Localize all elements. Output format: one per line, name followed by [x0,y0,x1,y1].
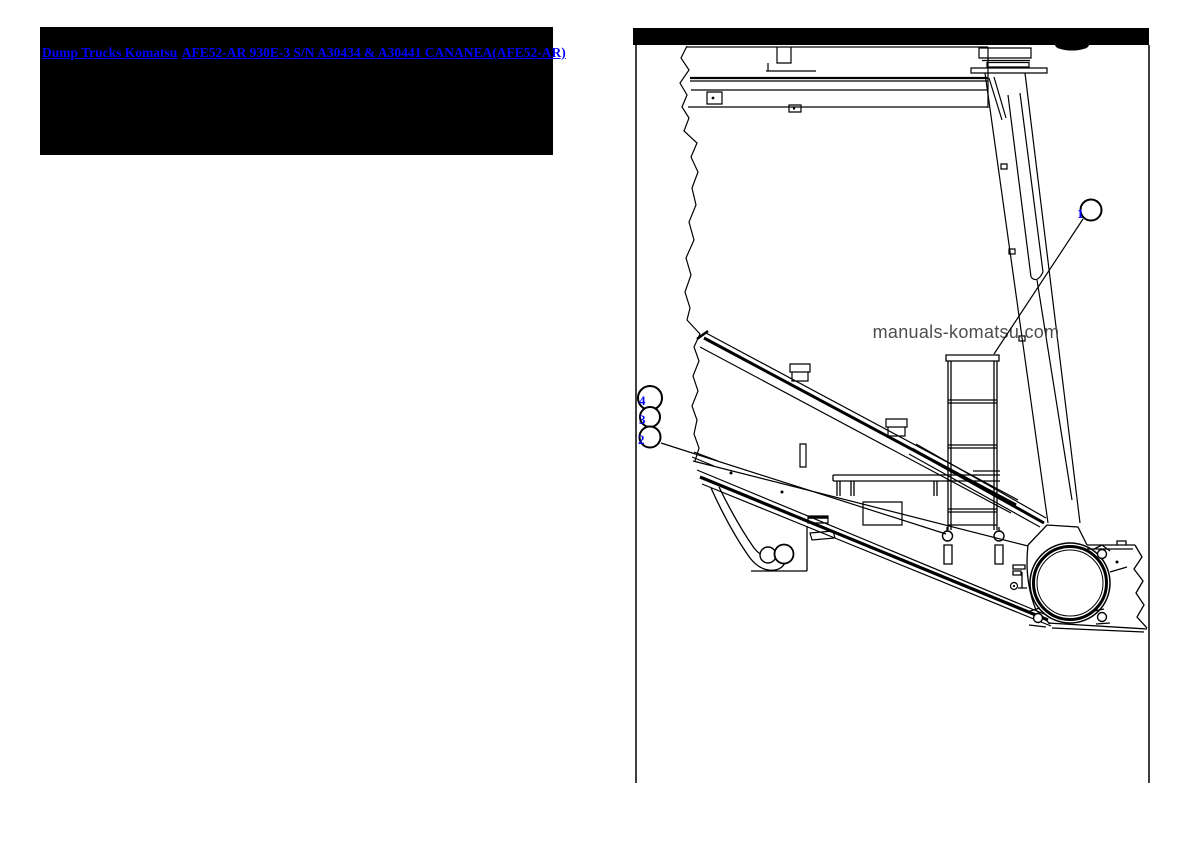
hub-bolt [1034,614,1043,623]
panel-border-lines [636,45,1149,783]
top-bar-blob [1055,40,1089,51]
callout-number-2: 2 [638,432,645,447]
bracket-hole [760,547,776,563]
break-line-left [680,46,700,461]
rear-rail [909,444,1046,527]
truck-frame-top [687,47,988,112]
callout-number-3: 3 [639,412,646,427]
hub-ring [1034,547,1107,620]
hub-bolt [1098,613,1107,622]
hoist-cylinder [985,73,1080,523]
rail-dot [730,472,733,475]
frame-top-lines [687,47,988,112]
cylinder-flange [971,48,1047,73]
callout-circle-1 [1081,200,1102,221]
frame-dot [712,97,715,100]
rail-dot [781,491,784,494]
frame-dot [793,107,795,109]
callout-3: 3 [639,407,660,427]
parts-diagram: manuals-komatsu.com 1 4 3 2 [0,0,1190,842]
body-beam [697,331,1018,513]
callout-1: 1 [1077,200,1102,222]
callout-2: 2 [638,427,661,448]
hub-bolt [1098,550,1107,559]
rail-band [700,477,1048,620]
page: Dump Trucks Komatsu AFE52-AR 930E-3 S/N … [0,0,1190,842]
cylinder-lines [985,73,1080,523]
watermark-text: manuals-komatsu.com [873,322,1060,342]
callout-number-4: 4 [639,393,646,408]
bracket-hole [775,545,794,564]
hub-inner-circle [1037,550,1103,616]
flange-lines [971,48,1047,73]
pivot-hub [1011,525,1148,632]
hub-small-dot [1013,585,1015,587]
hub-dot [1116,561,1119,564]
mount-bolt [943,531,953,541]
callout-number-1: 1 [1077,206,1084,221]
